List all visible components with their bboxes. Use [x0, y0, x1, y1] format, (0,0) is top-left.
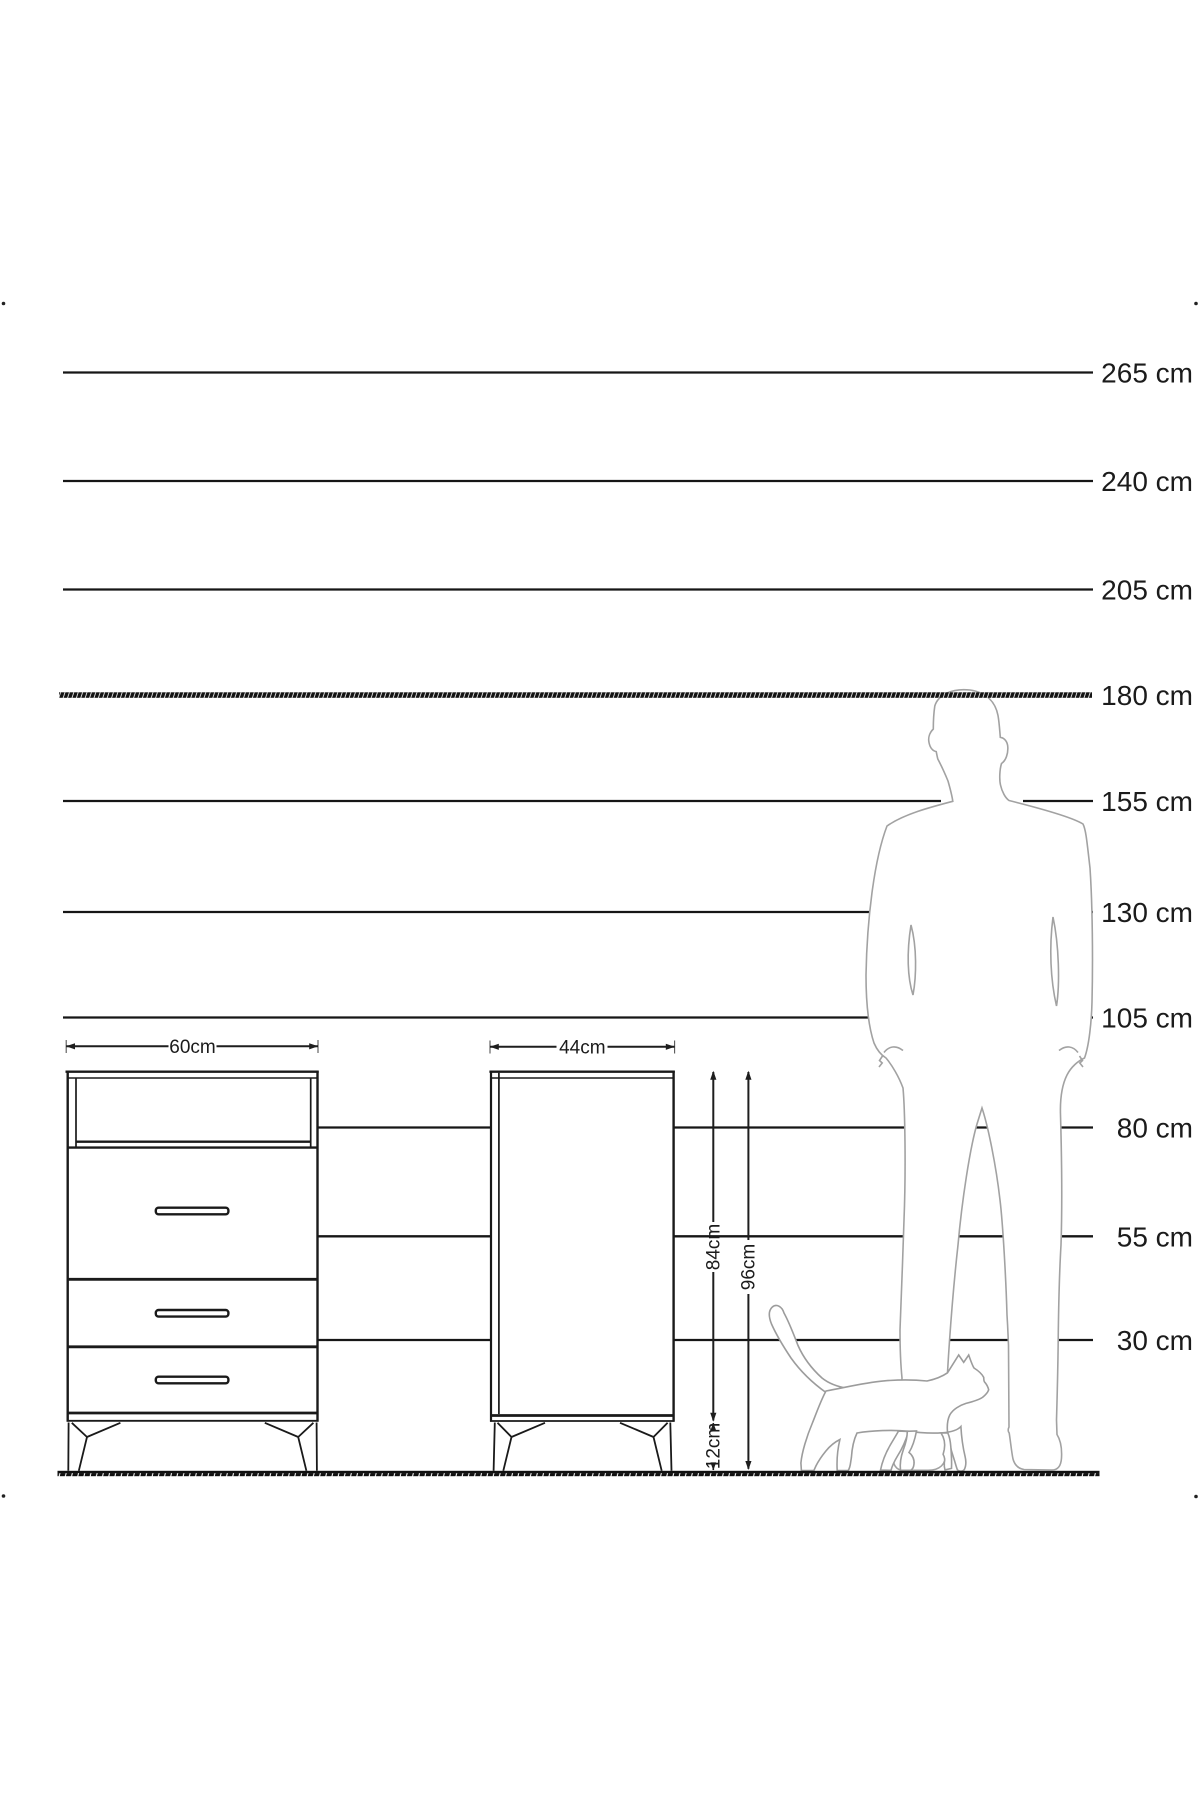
svg-text:30 cm: 30 cm — [1117, 1325, 1193, 1356]
svg-text:55 cm: 55 cm — [1117, 1221, 1193, 1252]
svg-text:180 cm: 180 cm — [1101, 680, 1193, 711]
svg-text:84cm: 84cm — [704, 1224, 725, 1270]
svg-text:130 cm: 130 cm — [1101, 897, 1193, 928]
svg-text:155 cm: 155 cm — [1101, 786, 1193, 817]
svg-text:60cm: 60cm — [169, 1037, 215, 1058]
svg-text:265 cm: 265 cm — [1101, 358, 1193, 389]
svg-text:12cm: 12cm — [704, 1423, 725, 1469]
svg-text:205 cm: 205 cm — [1101, 575, 1193, 606]
svg-text:105 cm: 105 cm — [1101, 1003, 1193, 1034]
svg-text:44cm: 44cm — [559, 1037, 605, 1058]
svg-text:80 cm: 80 cm — [1117, 1113, 1193, 1144]
svg-text:240 cm: 240 cm — [1101, 466, 1193, 497]
svg-text:96cm: 96cm — [739, 1244, 760, 1290]
